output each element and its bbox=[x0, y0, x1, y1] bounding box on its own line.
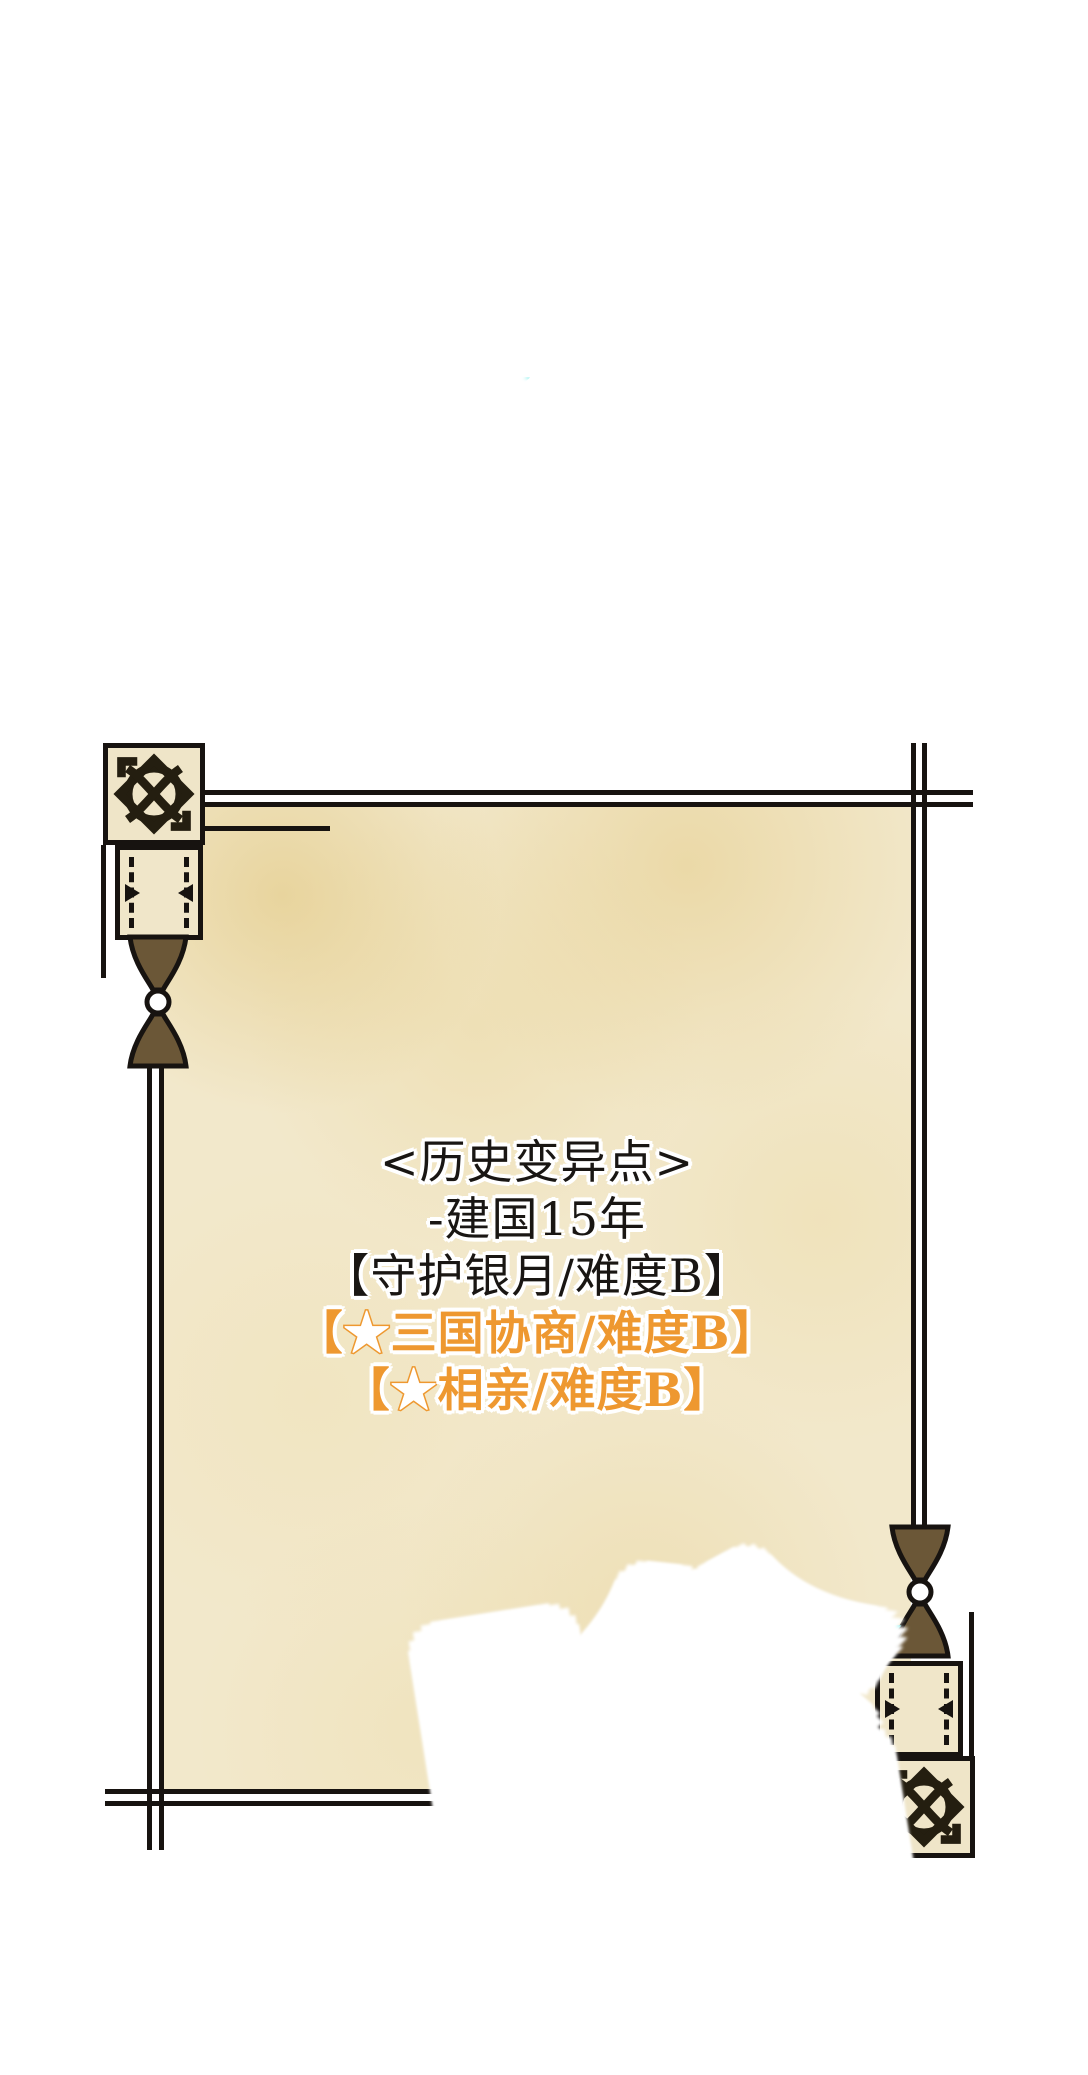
era-line: -建国15年 bbox=[163, 1191, 911, 1248]
knob-triangle-icon bbox=[938, 1700, 953, 1718]
ornament-stub-line bbox=[969, 1612, 974, 1758]
quest-line-main: 【守护银月/难度B】 bbox=[163, 1248, 911, 1305]
panel-border-right-outer bbox=[922, 743, 927, 1530]
star-icon: ★ bbox=[391, 1363, 438, 1417]
quest-line-side-1: 【★三国协商/难度B】 bbox=[163, 1305, 911, 1362]
panel-border-top-outer bbox=[150, 790, 973, 795]
quest-status-text-block: <历史变异点> -建国15年 【守护银月/难度B】 【★三国协商/难度B】 【★… bbox=[163, 1134, 911, 1419]
sfx-buzz-top: 嗡 bbox=[6, 284, 635, 767]
quest-side-2-label: 相亲/难度B】 bbox=[438, 1363, 731, 1417]
knob-triangle-icon bbox=[125, 884, 140, 902]
bracket-open: 【 bbox=[297, 1306, 344, 1360]
comic-page: <历史变异点> -建国15年 【守护银月/难度B】 【★三国协商/难度B】 【★… bbox=[0, 0, 1088, 2075]
quest-line-side-2: 【★相亲/难度B】 bbox=[163, 1362, 911, 1419]
panel-border-top-inner bbox=[150, 802, 973, 807]
ornament-stub-line bbox=[205, 826, 330, 831]
knob-triangle-icon bbox=[178, 884, 193, 902]
hourglass-finial-icon bbox=[123, 933, 193, 1070]
star-icon: ★ bbox=[344, 1306, 391, 1360]
panel-border-left-outer bbox=[147, 1065, 152, 1850]
panel-border-right-inner bbox=[911, 743, 916, 1530]
scroll-knob-box bbox=[115, 845, 203, 940]
sfx-buzz-bottom: 嗡 bbox=[349, 1491, 990, 2075]
history-point-title: <历史变异点> bbox=[163, 1134, 911, 1191]
bracket-open: 【 bbox=[344, 1363, 391, 1417]
quest-side-1-label: 三国协商/难度B】 bbox=[391, 1306, 778, 1360]
ornament-stub-line bbox=[101, 845, 106, 978]
celtic-knot-icon bbox=[110, 750, 198, 838]
